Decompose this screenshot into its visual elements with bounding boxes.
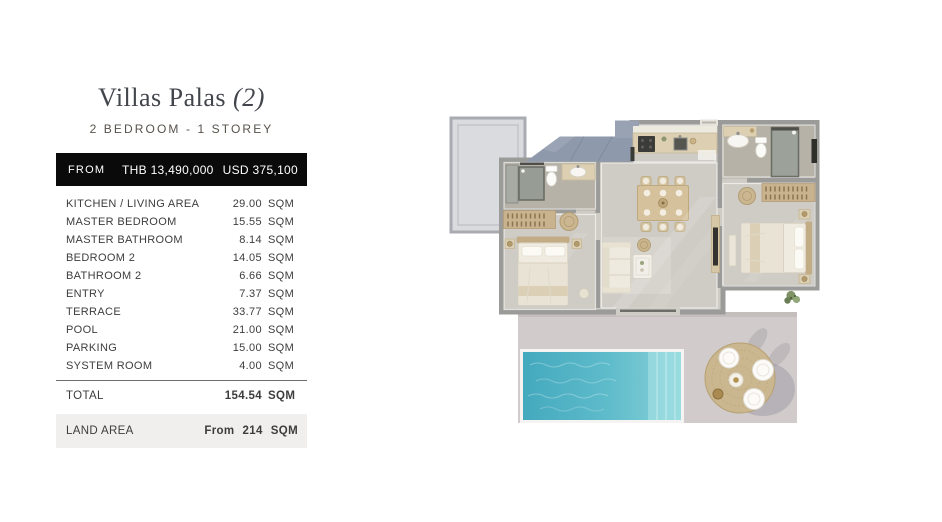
- pool: [520, 349, 684, 423]
- row-value: 29.00SQM: [216, 198, 298, 210]
- row-label: TERRACE: [66, 306, 121, 318]
- row-label: BEDROOM 2: [66, 252, 135, 264]
- land-area-value: From 214 SQM: [204, 425, 298, 437]
- price-bar: FROM THB 13,490,000 USD 375,100: [56, 153, 307, 186]
- land-area-label: LAND AREA: [66, 425, 134, 437]
- table-row: ENTRY7.37SQM: [56, 285, 307, 303]
- page-title-text: Villas Palas: [98, 83, 226, 112]
- table-row: BEDROOM 214.05SQM: [56, 249, 307, 267]
- row-label: MASTER BEDROOM: [66, 216, 177, 228]
- plant: [784, 291, 800, 304]
- total-label: TOTAL: [66, 390, 104, 402]
- table-row: MASTER BATHROOM8.14SQM: [56, 231, 307, 249]
- page-title-number: (2): [233, 83, 265, 112]
- row-label: MASTER BATHROOM: [66, 234, 183, 246]
- villa-brochure-page: Villas Palas(2) 2 BEDROOM - 1 STOREY FRO…: [0, 0, 942, 522]
- table-row: PARKING15.00SQM: [56, 339, 307, 357]
- row-value: 4.00SQM: [216, 360, 298, 372]
- row-value: 7.37SQM: [216, 288, 298, 300]
- row-value: 6.66SQM: [216, 270, 298, 282]
- row-label: KITCHEN / LIVING AREA: [66, 198, 199, 210]
- row-value: 14.05SQM: [216, 252, 298, 264]
- row-value: 8.14SQM: [216, 234, 298, 246]
- roof: [526, 121, 639, 162]
- table-row: MASTER BEDROOM15.55SQM: [56, 213, 307, 231]
- row-value: 33.77SQM: [216, 306, 298, 318]
- price-thb: THB 13,490,000: [122, 163, 214, 177]
- price-values: THB 13,490,000 USD 375,100: [122, 163, 298, 177]
- row-value: 21.00SQM: [216, 324, 298, 336]
- total-value: 154.54SQM: [216, 390, 298, 402]
- table-row: SYSTEM ROOM4.00SQM: [56, 357, 307, 375]
- land-area-row: LAND AREA From 214 SQM: [56, 414, 307, 448]
- row-label: ENTRY: [66, 288, 105, 300]
- total-row: TOTAL 154.54SQM: [56, 380, 307, 414]
- row-value: 15.00SQM: [216, 342, 298, 354]
- page-title: Villas Palas(2): [56, 84, 307, 112]
- row-label: PARKING: [66, 342, 117, 354]
- row-label: BATHROOM 2: [66, 270, 141, 282]
- table-row: BATHROOM 26.66SQM: [56, 267, 307, 285]
- bedroom-2: [729, 184, 815, 284]
- row-value: 15.55SQM: [216, 216, 298, 228]
- row-label: POOL: [66, 324, 98, 336]
- floorplan-image: [448, 114, 820, 426]
- row-label: SYSTEM ROOM: [66, 360, 152, 372]
- price-from-label: FROM: [68, 164, 105, 176]
- table-row: KITCHEN / LIVING AREA29.00SQM: [56, 195, 307, 213]
- table-row: POOL21.00SQM: [56, 321, 307, 339]
- page-subtitle: 2 BEDROOM - 1 STOREY: [56, 122, 307, 136]
- price-usd: USD 375,100: [223, 163, 298, 177]
- table-row: TERRACE33.77SQM: [56, 303, 307, 321]
- villa-info-panel: Villas Palas(2) 2 BEDROOM - 1 STOREY FRO…: [56, 84, 307, 448]
- area-table: KITCHEN / LIVING AREA29.00SQM MASTER BED…: [56, 186, 307, 380]
